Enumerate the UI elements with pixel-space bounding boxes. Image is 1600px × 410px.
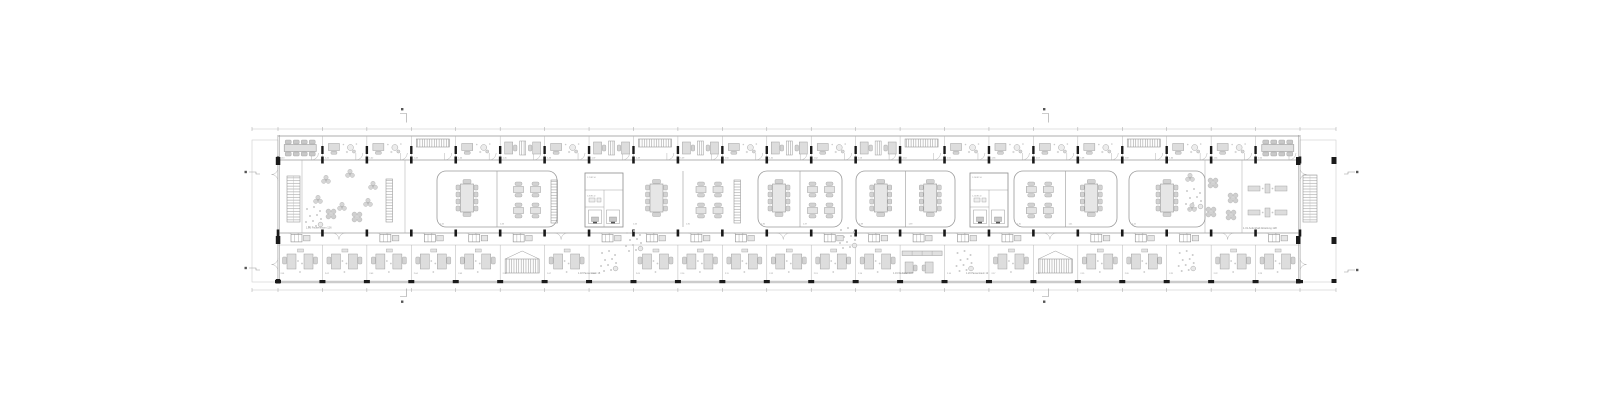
column <box>499 157 502 164</box>
drawing-canvas: 1.321.331.341.351.361.371.381.391.401.41… <box>0 0 1600 410</box>
bottom-room-furniture <box>1178 250 1196 272</box>
wc-core <box>970 173 1008 227</box>
top-room-code: 1.60 <box>1169 157 1174 159</box>
corridor-fixture <box>1180 234 1199 242</box>
column <box>1210 230 1213 237</box>
top-room-furniture <box>1084 143 1113 154</box>
small-tables-area <box>696 182 723 218</box>
column <box>588 146 590 154</box>
bottom-room-furniture <box>460 249 495 273</box>
large-plant <box>352 212 362 222</box>
bottom-room-furniture <box>771 249 806 273</box>
column <box>943 230 946 237</box>
column <box>942 280 948 283</box>
bottom-room-furniture <box>549 249 584 273</box>
top-room-furniture <box>860 141 896 155</box>
column <box>543 157 546 164</box>
bottom-room-furniture <box>371 249 406 273</box>
column <box>632 146 634 154</box>
top-room-code: 1.59 <box>1125 157 1130 159</box>
door-arc <box>1111 153 1118 160</box>
corridor-fixture <box>469 234 488 242</box>
section-marker <box>249 268 260 270</box>
top-room-code: 1.41 <box>325 157 330 159</box>
column <box>988 146 990 154</box>
bottom-room-furniture <box>860 249 895 273</box>
bench-row <box>1248 184 1287 193</box>
column <box>986 280 992 283</box>
tall-shelf <box>386 179 393 222</box>
column <box>808 280 814 283</box>
bottom-room-furniture <box>1038 251 1072 273</box>
column <box>1332 157 1337 164</box>
column <box>1210 146 1212 154</box>
door-arc <box>1200 153 1207 160</box>
west-entry-door <box>272 168 279 181</box>
door-arc <box>356 153 363 160</box>
small-tables-area <box>514 182 541 218</box>
door-arc <box>934 153 941 160</box>
door-arc <box>667 153 674 160</box>
column <box>677 230 680 237</box>
column <box>1165 146 1167 154</box>
top-room-furniture <box>551 143 580 154</box>
corridor-fixture <box>824 234 843 242</box>
corridor-fixture <box>424 234 443 242</box>
column <box>276 279 281 284</box>
room-code: 1.39 <box>909 224 914 226</box>
corridor-fixture <box>1002 234 1021 242</box>
conference-room <box>1080 180 1102 217</box>
column <box>719 280 725 283</box>
column <box>321 146 323 154</box>
corridor-fixture <box>1135 234 1154 242</box>
column <box>765 230 768 237</box>
top-room-furniture <box>284 140 316 156</box>
column <box>277 230 280 237</box>
double-door <box>332 233 345 240</box>
top-room-furniture <box>1039 143 1068 154</box>
column <box>543 146 545 154</box>
section-marker-dot <box>1043 301 1045 303</box>
bottom-room-code: 2.07 <box>547 273 552 275</box>
section-marker <box>400 289 407 297</box>
column <box>677 157 680 164</box>
double-door <box>1043 233 1056 240</box>
column <box>499 146 501 154</box>
top-room-code: 1.62 <box>1258 157 1263 159</box>
top-room-code: 1.47 <box>592 157 597 159</box>
conference-room <box>768 180 790 217</box>
conference-room <box>646 180 668 217</box>
column <box>721 230 724 237</box>
plant <box>314 195 323 203</box>
plant-dots <box>305 206 323 228</box>
top-room-code: 1.54 <box>903 157 908 159</box>
column <box>1030 280 1036 283</box>
large-plant <box>1226 210 1236 220</box>
section-marker <box>1042 114 1049 123</box>
room-code: 1.34 <box>633 224 638 226</box>
top-room-furniture <box>951 143 980 154</box>
plant <box>1188 203 1197 211</box>
double-door <box>777 233 790 240</box>
bottom-room-code: 2.13 <box>814 273 819 275</box>
top-room-code: 1.57 <box>1036 157 1041 159</box>
tall-shelf <box>551 180 558 223</box>
section-marker-dot <box>1043 108 1045 110</box>
column <box>1121 230 1124 237</box>
bottom-room-code: 2.22 <box>1214 273 1219 275</box>
section-marker <box>400 114 407 123</box>
section-marker-dot <box>1356 269 1358 271</box>
room-code: 1.32 <box>440 224 445 226</box>
top-room-code: 1.42 <box>369 157 374 159</box>
corridor-fixture <box>513 234 532 242</box>
door-arc <box>489 153 496 160</box>
column <box>854 230 857 237</box>
column <box>943 157 946 164</box>
room-name-label: 1.31 Aufenthalt Abteilung 128 <box>1243 226 1277 230</box>
column <box>455 146 457 154</box>
wc-core <box>585 173 623 227</box>
column <box>1032 230 1035 237</box>
corridor-fixture <box>735 234 754 242</box>
column <box>899 146 901 154</box>
top-room-furniture <box>638 139 671 147</box>
room-code: 1.33 <box>500 224 505 226</box>
column <box>1253 280 1259 283</box>
column <box>453 280 459 283</box>
corridor-fixture <box>380 234 399 242</box>
column <box>1296 279 1301 284</box>
column <box>542 280 548 283</box>
door-arc <box>1067 153 1074 160</box>
column <box>988 230 991 237</box>
column <box>1032 157 1035 164</box>
column <box>632 157 635 164</box>
top-room-furniture <box>995 143 1024 154</box>
column <box>854 157 857 164</box>
bottom-room-code: 2.09 <box>636 273 641 275</box>
top-room-furniture <box>905 139 938 147</box>
large-plant <box>1208 178 1218 188</box>
column <box>765 157 768 164</box>
top-room-code: 1.52 <box>814 157 819 159</box>
room-code: 1.35 <box>686 224 691 226</box>
conference-room <box>870 180 892 217</box>
wc-label: 1.8 WC D <box>587 196 596 198</box>
plant <box>338 202 347 210</box>
top-room-code: 1.50 <box>725 157 730 159</box>
section-marker <box>1344 172 1355 174</box>
west-porch <box>252 140 278 282</box>
tall-shelf <box>734 180 741 223</box>
double-door <box>1221 233 1234 240</box>
wc-label: 1.24 WC H <box>972 177 982 179</box>
room-code: 1.37 <box>803 224 808 226</box>
column <box>721 146 723 154</box>
bottom-room-code: 2.02 <box>325 273 330 275</box>
corridor-fixture <box>869 234 888 242</box>
column <box>454 157 457 164</box>
bottom-room-furniture <box>283 249 318 273</box>
plant <box>1186 173 1195 181</box>
column <box>366 157 369 164</box>
section-marker-dot <box>401 301 403 303</box>
room-code: 1.40 <box>1017 224 1022 226</box>
bottom-room-furniture <box>956 250 974 272</box>
plant <box>346 169 355 177</box>
room-code: 1.38 <box>859 224 864 226</box>
section-marker-dot <box>1356 171 1358 173</box>
column <box>943 146 945 154</box>
bottom-room-furniture <box>505 251 539 273</box>
column <box>1121 157 1124 164</box>
column <box>1119 280 1125 283</box>
bottom-room-furniture <box>727 249 762 273</box>
room-code: 1.42 <box>1132 224 1137 226</box>
bottom-room-furniture <box>1216 249 1251 273</box>
top-room-furniture <box>462 143 491 154</box>
column <box>410 146 412 154</box>
column <box>1254 230 1257 237</box>
door-arc <box>1022 153 1029 160</box>
column <box>543 230 546 237</box>
column <box>1077 157 1080 164</box>
wc-label: 1.25 WC D <box>972 196 982 198</box>
top-room-code: 1.44 <box>458 157 463 159</box>
top-room-code: 1.56 <box>991 157 996 159</box>
conference-room <box>919 180 941 217</box>
bottom-room-furniture <box>1082 249 1117 273</box>
corridor-fixture <box>1091 234 1110 242</box>
bottom-room-code: 2.19 <box>1080 273 1085 275</box>
floor-plan-layer: 1.321.331.341.351.361.371.381.391.401.41… <box>245 108 1359 303</box>
bottom-room-furniture <box>993 249 1028 273</box>
column <box>410 157 413 164</box>
top-room-furniture <box>505 141 541 155</box>
bottom-room-code: 2.14 <box>858 273 863 275</box>
bottom-room-code: 2.11 <box>725 273 730 275</box>
bottom-room-code: 2.01 <box>281 273 286 275</box>
column <box>319 280 325 283</box>
column <box>321 157 324 164</box>
top-room-code: 1.49 <box>680 157 685 159</box>
top-room-code: 1.61 <box>1214 157 1219 159</box>
section-marker-dot <box>401 108 403 110</box>
column <box>810 230 813 237</box>
bottom-room-furniture <box>902 251 942 273</box>
top-room-furniture <box>1173 143 1202 154</box>
column <box>588 230 591 237</box>
bottom-room-furniture <box>1127 249 1162 273</box>
column <box>1077 230 1080 237</box>
top-room-furniture <box>328 143 357 154</box>
bottom-room-furniture <box>600 250 618 272</box>
bottom-room-code: 2.10 <box>680 273 685 275</box>
door-arc <box>1156 153 1163 160</box>
column <box>410 230 413 237</box>
column <box>897 280 903 283</box>
bottom-room-code: 2.21 <box>1169 273 1174 275</box>
column <box>499 230 502 237</box>
top-room-furniture <box>682 141 718 155</box>
top-room-furniture <box>728 143 757 154</box>
corridor-fixture <box>602 234 621 242</box>
column <box>899 157 902 164</box>
top-room-code: 1.46 <box>547 157 552 159</box>
corridor-fixture <box>958 234 977 242</box>
column <box>1164 280 1170 283</box>
bottom-room-furniture <box>816 249 851 273</box>
bottom-room-furniture <box>638 249 673 273</box>
top-room-furniture <box>771 141 807 155</box>
column <box>321 230 324 237</box>
column <box>408 280 414 283</box>
floor-plan-svg: 1.321.331.341.351.361.371.381.391.401.41… <box>0 0 1600 410</box>
bottom-room-furniture <box>416 249 451 273</box>
plant <box>322 175 331 183</box>
column <box>1165 230 1168 237</box>
door-arc <box>400 153 407 160</box>
bottom-room-furniture <box>682 249 717 273</box>
large-plant <box>326 209 336 219</box>
column <box>276 236 281 244</box>
column <box>721 157 724 164</box>
section-marker <box>1042 289 1049 297</box>
door-arc <box>978 153 985 160</box>
room-name-label: 1.18 Pausenraum 18 <box>578 272 601 275</box>
conference-room <box>456 180 478 217</box>
bench-row <box>1248 208 1287 217</box>
corridor-fixture <box>646 234 665 242</box>
section-marker <box>1344 270 1355 272</box>
top-room-code: 1.55 <box>947 157 952 159</box>
room-name-label: 1.19 Werkstatt 107 <box>893 272 914 275</box>
bottom-room-code: 2.03 <box>369 273 374 275</box>
column <box>1210 157 1213 164</box>
column <box>810 146 812 154</box>
east-entry-door <box>1300 258 1307 271</box>
column <box>586 280 592 283</box>
west-entry-door <box>272 258 279 271</box>
top-room-code: 1.43 <box>414 157 419 159</box>
column <box>364 280 370 283</box>
column <box>1254 157 1257 164</box>
door-arc <box>578 153 585 160</box>
column <box>1332 237 1337 244</box>
top-room-furniture <box>1217 143 1246 154</box>
column <box>1332 279 1337 283</box>
large-plant <box>1206 207 1216 217</box>
room-name-label: 1.16 Pausenraum 126 <box>306 226 332 230</box>
column <box>675 280 681 283</box>
column <box>497 280 503 283</box>
column <box>1299 230 1302 237</box>
column <box>1208 280 1214 283</box>
top-room-furniture <box>1262 140 1294 156</box>
bottom-room-code: 2.16 <box>947 273 952 275</box>
column <box>1077 146 1079 154</box>
column <box>630 280 636 283</box>
bottom-room-code: 2.04 <box>414 273 419 275</box>
column <box>454 230 457 237</box>
bottom-room-furniture <box>327 249 362 273</box>
large-plant <box>1228 193 1238 203</box>
column <box>1296 157 1301 165</box>
top-room-furniture <box>817 143 846 154</box>
room-code: 1.36 <box>761 224 766 226</box>
column <box>1296 236 1301 244</box>
column <box>766 146 768 154</box>
column <box>853 280 859 283</box>
bottom-room-code: 2.23 <box>1258 273 1263 275</box>
column <box>677 146 679 154</box>
plant <box>369 181 378 189</box>
column <box>899 230 902 237</box>
plant <box>364 198 373 206</box>
small-tables-area <box>808 182 835 218</box>
top-room-code: 1.51 <box>769 157 774 159</box>
room-code: 1.41 <box>1069 224 1074 226</box>
section-marker <box>249 172 260 174</box>
top-room-furniture <box>416 139 449 147</box>
top-room-furniture <box>373 143 402 154</box>
column <box>1165 157 1168 164</box>
column <box>810 157 813 164</box>
corridor-fixture <box>913 234 932 242</box>
column <box>854 146 856 154</box>
column <box>1254 146 1256 154</box>
column <box>366 230 369 237</box>
door-arc <box>445 153 452 160</box>
section-marker-dot <box>245 267 247 269</box>
corridor-fixture <box>691 234 710 242</box>
top-room-code: 1.48 <box>636 157 641 159</box>
corridor-fixture <box>1269 234 1288 242</box>
door-arc <box>845 153 852 160</box>
column <box>366 146 368 154</box>
column <box>588 157 591 164</box>
bottom-room-code: 2.17 <box>991 273 996 275</box>
corridor-fixture <box>291 234 310 242</box>
top-room-furniture <box>1127 139 1160 147</box>
bottom-room-code: 2.05 <box>458 273 463 275</box>
top-room-code: 1.53 <box>858 157 863 159</box>
top-room-code: 1.45 <box>503 157 508 159</box>
door-arc <box>756 153 763 160</box>
wc-label: 1.7 WC H <box>587 177 596 179</box>
room-name-label: 1.20 Pausenraum 12 <box>966 272 989 275</box>
column <box>764 280 770 283</box>
bottom-room-code: 2.12 <box>769 273 774 275</box>
conference-room <box>1156 180 1178 217</box>
section-marker-dot <box>245 171 247 173</box>
bottom-room-code: 2.20 <box>1125 273 1130 275</box>
column <box>988 157 991 164</box>
column <box>1032 146 1034 154</box>
small-tables-area <box>1026 182 1053 218</box>
double-door <box>555 233 568 240</box>
top-room-code: 1.58 <box>1080 157 1085 159</box>
column <box>1121 146 1123 154</box>
bottom-room-furniture <box>1260 249 1295 273</box>
column <box>1075 280 1081 283</box>
door-arc <box>1245 153 1252 160</box>
top-room-furniture <box>594 141 630 155</box>
top-room-code: 1.40 <box>281 157 286 159</box>
